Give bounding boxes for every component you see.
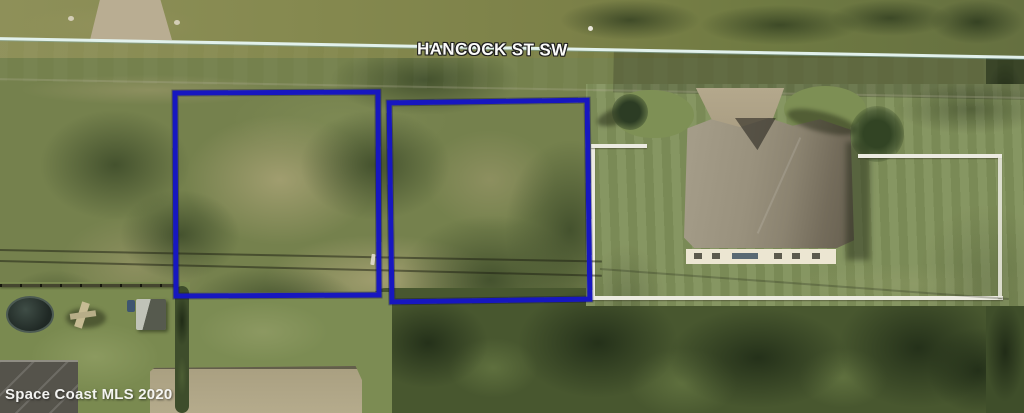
tree-canopy-bottom bbox=[368, 288, 1024, 413]
window bbox=[694, 253, 702, 259]
window bbox=[774, 253, 782, 259]
driveway-north bbox=[90, 0, 172, 40]
window bbox=[712, 253, 720, 259]
fence-segment-northeast bbox=[858, 154, 1002, 158]
rock bbox=[68, 16, 74, 21]
parcel-outline-east bbox=[387, 98, 593, 305]
rock bbox=[174, 20, 180, 25]
fence-segment-northwest bbox=[591, 144, 647, 148]
window bbox=[812, 253, 820, 259]
house-front-wall bbox=[686, 249, 836, 264]
mailbox-dot bbox=[588, 26, 593, 31]
backyard-fence bbox=[0, 284, 178, 287]
house bbox=[684, 118, 854, 264]
street-name-label: HANCOCK ST SW bbox=[417, 39, 568, 60]
garden-shed bbox=[136, 299, 166, 330]
hedge-line bbox=[175, 286, 189, 413]
trampoline bbox=[6, 296, 54, 333]
house-roof bbox=[684, 118, 854, 248]
aerial-parcel-photo: HANCOCK ST SW Space Coast MLS 2020 bbox=[0, 0, 1024, 413]
fence-segment-south bbox=[591, 296, 1003, 300]
mls-watermark: Space Coast MLS 2020 bbox=[5, 386, 172, 403]
parcel-outline-west bbox=[172, 89, 381, 298]
screened-porch bbox=[732, 253, 758, 259]
blue-barrel bbox=[127, 300, 135, 312]
tree bbox=[612, 94, 648, 130]
window bbox=[792, 253, 800, 259]
fence-segment-east bbox=[998, 156, 1002, 298]
